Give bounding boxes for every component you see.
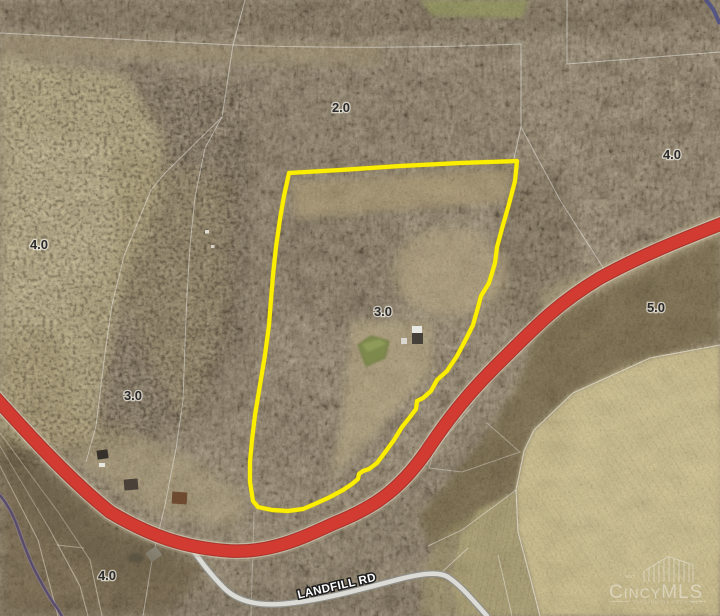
svg-text:4.0: 4.0	[663, 147, 681, 162]
svg-text:3.0: 3.0	[124, 388, 142, 403]
svg-text:2.0: 2.0	[332, 100, 350, 115]
svg-text:3.0: 3.0	[374, 304, 392, 319]
svg-text:4.0: 4.0	[30, 237, 48, 252]
svg-text:CINCINNATI AREA MLS: CINCINNATI AREA MLS	[633, 600, 703, 605]
svg-text:5.0: 5.0	[647, 300, 665, 315]
svg-text:EST: EST	[626, 574, 635, 579]
svg-text:4.0: 4.0	[98, 568, 116, 583]
